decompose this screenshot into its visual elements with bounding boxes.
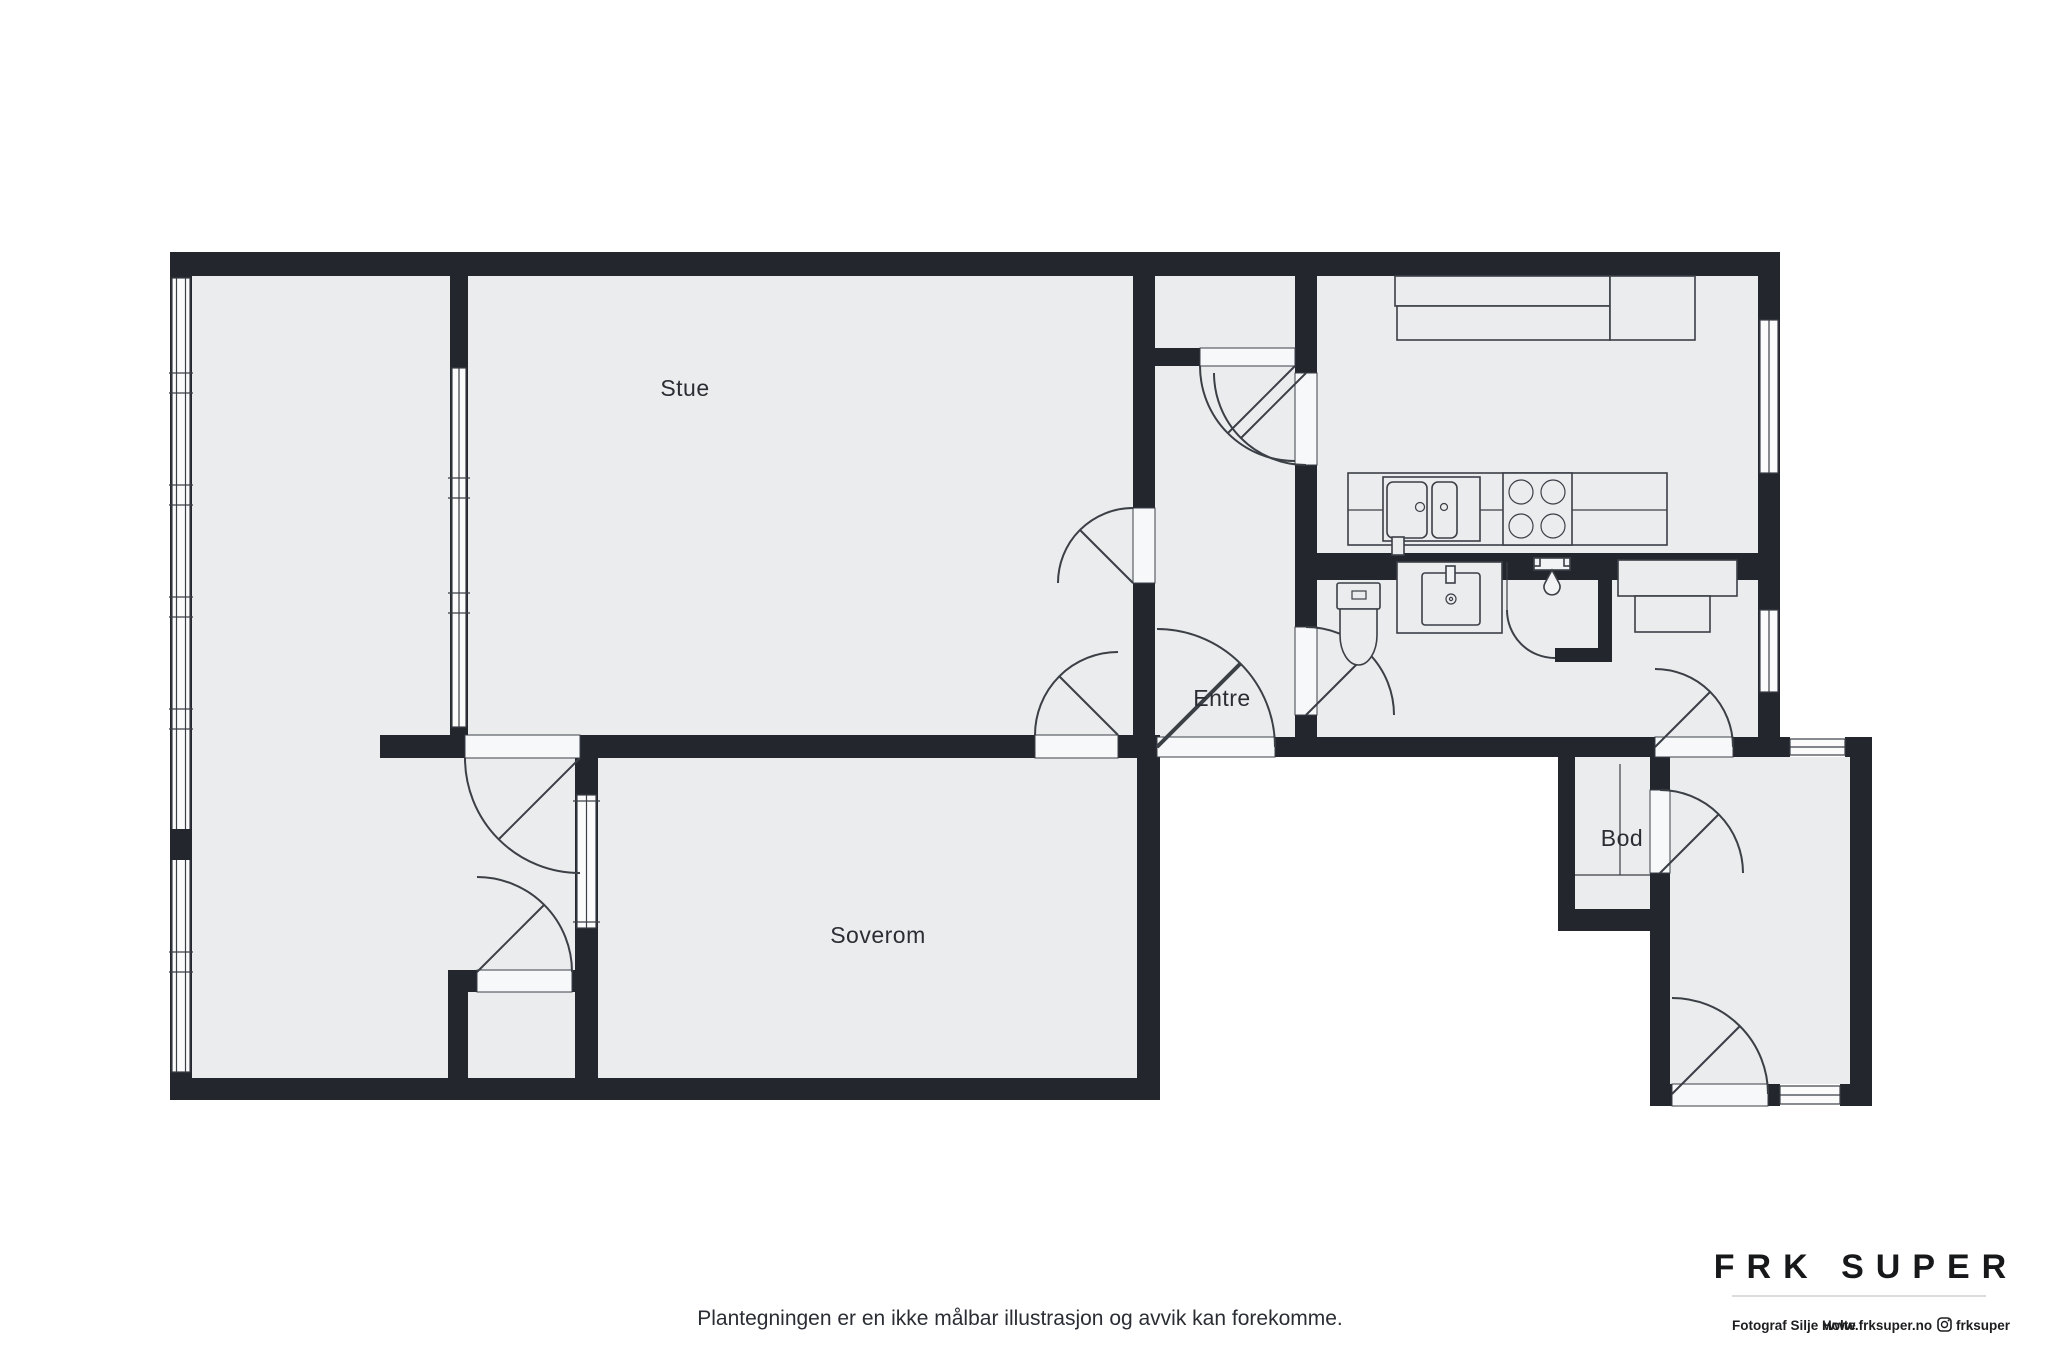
wall-hall-closet-bottom — [1155, 348, 1200, 366]
logo-text: FRK SUPER — [1714, 1248, 2018, 1286]
floor-balcony-room — [192, 274, 450, 1078]
sink-basin — [1387, 482, 1427, 538]
laundry-bench-icon — [1618, 560, 1737, 596]
wall-top — [170, 252, 1780, 276]
door-gap-terrace-exit — [1672, 1084, 1768, 1106]
door-gap-entre-closetroom — [1200, 348, 1295, 366]
kitchen-cabinets-icon — [1395, 276, 1610, 306]
kitchen-fridge-icon — [1610, 276, 1695, 340]
wall-bod-right-a — [1650, 757, 1670, 790]
wall-entre-bottom — [1275, 737, 1655, 757]
door-gap-stue-balcony — [465, 735, 580, 758]
door-gap-entre-kitchen — [1295, 373, 1317, 465]
vanity-tap — [1446, 566, 1455, 583]
sink-fitting — [1392, 537, 1404, 555]
wall-stue-soverom-divider — [580, 735, 1035, 758]
wall-left-separator — [170, 829, 192, 860]
room-label-soverom: Soverom — [830, 922, 926, 948]
disclaimer-text: Plantegningen er en ikke målbar illustra… — [697, 1307, 1343, 1330]
instagram-icon — [1938, 1318, 1951, 1331]
wall-bod-left — [1558, 757, 1575, 931]
wall-soverom-right — [1137, 735, 1160, 1100]
wall-closet-top-a — [448, 970, 477, 992]
wall-terrace-bottom-c — [1840, 1084, 1872, 1106]
kitchen-cabinets-icon — [1397, 306, 1610, 340]
room-label-stue: Stue — [660, 375, 709, 401]
wall-terrace-bottom-a — [1650, 1084, 1672, 1106]
wall-closet-top-b — [572, 970, 598, 992]
floors — [192, 274, 1850, 1084]
wall-divider-right-seg — [1118, 735, 1160, 758]
wall-stue-right-column — [1133, 252, 1155, 735]
laundry-bench-icon — [1635, 596, 1710, 632]
floor-soverom — [598, 758, 1137, 1078]
wall-terrace-bottom-b — [1768, 1084, 1780, 1106]
website-link[interactable]: www.frksuper.no — [1823, 1318, 1932, 1333]
window-icon — [172, 278, 190, 1072]
door-gap-stue-entre — [1133, 508, 1155, 583]
toilet-icon — [1337, 583, 1380, 609]
instagram-handle[interactable]: frksuper — [1956, 1318, 2011, 1333]
wall-terrace-right — [1850, 737, 1872, 1106]
floor-stue — [468, 274, 1133, 735]
shower-head-end — [1534, 558, 1540, 566]
wall-divider-stub — [380, 735, 465, 758]
wall-bod-right-b — [1650, 873, 1670, 1084]
wall-bottom — [170, 1078, 1160, 1100]
floor-plan-canvas: Stue Soverom Entre Bod Plantegningen er … — [0, 0, 2048, 1366]
wall-shower-bottom — [1555, 648, 1612, 662]
room-label-bod: Bod — [1601, 825, 1643, 851]
floor-terrace-room — [1670, 757, 1850, 1084]
door-gap-stue-soverom — [1035, 735, 1118, 758]
floor-entre — [1155, 274, 1295, 737]
shower-head-end — [1564, 558, 1570, 566]
door-gap-closet — [477, 970, 572, 992]
door-gap-bod — [1650, 790, 1670, 873]
wall-terrace-top-a — [1733, 737, 1790, 757]
toilet-bowl — [1340, 609, 1377, 665]
wall-shower-right — [1598, 562, 1612, 655]
room-label-entre: Entre — [1193, 685, 1250, 711]
door-gap-entre-bathroom — [1295, 627, 1317, 715]
branding-block: FRK SUPER Fotograf Silje Holte www.frksu… — [1714, 1248, 2018, 1333]
door-gap-entrance — [1157, 737, 1275, 757]
door-gap-hall-terrace — [1655, 737, 1733, 757]
